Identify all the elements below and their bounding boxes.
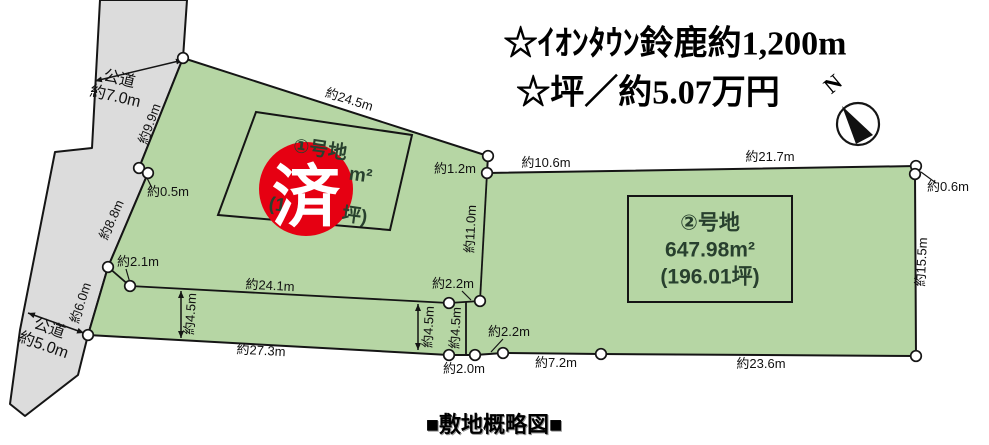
- plot1-area-sqm: m²: [348, 165, 374, 187]
- dim-plot2-bottom-23-6: 約23.6m: [736, 357, 785, 371]
- dim-strip-width-east: 約4.5m: [421, 306, 437, 349]
- dim-boundary-south-4-5: 約4.5m: [448, 307, 464, 350]
- headline-price: ☆坪／約5.07万円: [516, 65, 780, 114]
- dim-jog-0-5: 約0.5m: [147, 185, 189, 199]
- dim-strip-bottom: 約27.3m: [236, 343, 286, 360]
- dim-boundary-jog-1-2: 約1.2m: [434, 162, 476, 176]
- plot2-area-tsubo: (196.01坪): [660, 267, 759, 288]
- dim-boundary-11-0: 約11.0m: [463, 205, 480, 254]
- dim-plot2-top-10-6: 約10.6m: [521, 156, 570, 170]
- plot2-name: ②号地: [680, 213, 740, 234]
- dim-plot2-bottom-7-2: 約7.2m: [535, 356, 577, 370]
- dim-plot2-top-21-7: 約21.7m: [745, 150, 794, 164]
- dim-ne-jog-0-6: 約0.6m: [927, 180, 969, 194]
- dim-boundary-jog-2-2: 約2.2m: [432, 277, 474, 291]
- dim-jog-2-1: 約2.1m: [117, 255, 159, 269]
- compass-icon: [837, 103, 879, 145]
- dim-south-2-2: 約2.2m: [488, 325, 530, 339]
- drawing-caption: ■敷地概略図■: [426, 407, 563, 439]
- sold-stamp-text: 済: [272, 142, 340, 241]
- dim-south-2-0: 約2.0m: [443, 362, 485, 376]
- headline-distance: ☆ｲｵﾝﾀｳﾝ鈴鹿約1,200m: [504, 16, 847, 65]
- dim-strip-width-west: 約4.5m: [182, 293, 199, 336]
- plot2-area-sqm: 647.98m²: [665, 240, 755, 261]
- dim-plot2-east-15-5: 約15.5m: [914, 237, 931, 287]
- site-plan-drawing: [0, 0, 989, 445]
- dim-strip-top: 約24.1m: [245, 278, 295, 295]
- site-plan: ☆ｲｵﾝﾀｳﾝ鈴鹿約1,200m ☆坪／約5.07万円 N 公道 約7.0m 公…: [0, 0, 989, 445]
